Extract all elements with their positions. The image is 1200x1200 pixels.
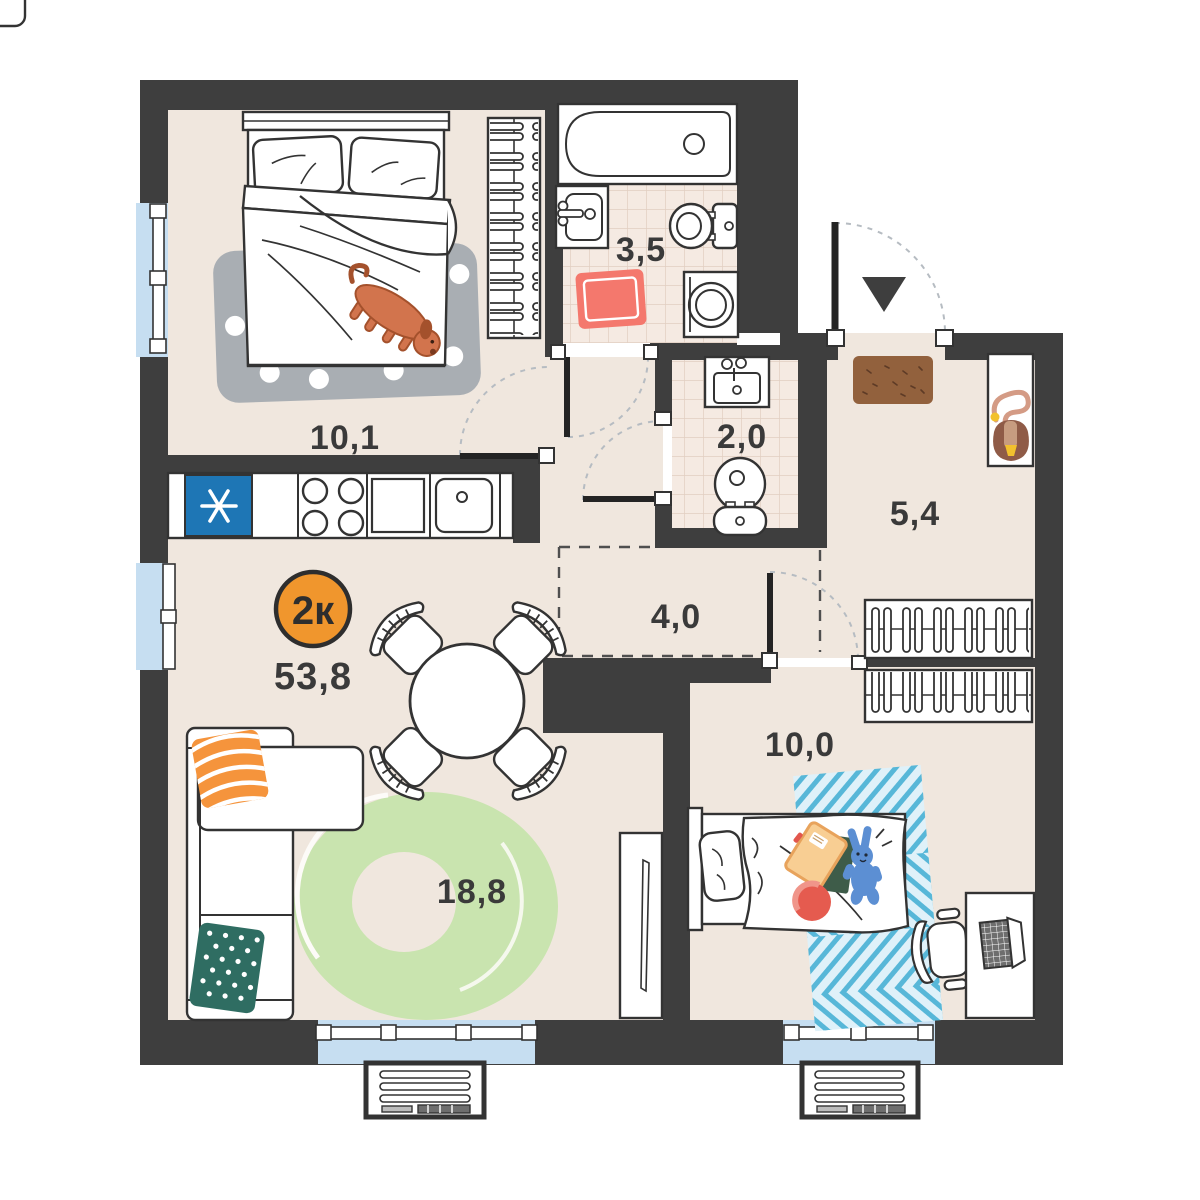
hall-wardrobe-upper (865, 600, 1032, 658)
toilet-wc (714, 458, 766, 535)
kids-pillow (699, 830, 746, 902)
hall-cabinet (988, 354, 1033, 466)
bathroom-sink (556, 186, 608, 248)
corridor-area-label: 4,0 (651, 598, 701, 636)
ac-unit-left (366, 1063, 484, 1117)
living-room-bottom-window (316, 1020, 537, 1064)
bedroom-area-label: 10,1 (310, 419, 380, 457)
bathtub (558, 104, 737, 184)
ac-unit-right (802, 1063, 918, 1117)
floor-plan-canvas: 10,1 (0, 0, 1200, 1200)
floor-plan-page: 10,1 (0, 0, 1200, 1200)
bed-pillow-right (348, 137, 440, 199)
desk (966, 893, 1034, 1018)
unit-type-badge-label: 2к (292, 589, 335, 633)
wall-bathroom-right-block (737, 80, 798, 333)
bedroom-window (136, 203, 168, 357)
living-room-side-window (136, 563, 176, 670)
bathroom-rug (575, 269, 647, 330)
sofa-pillow-teal (188, 922, 265, 1014)
washing-machine (684, 272, 738, 337)
wall-kids-top-right (861, 658, 1035, 667)
total-area-label: 53,8 (274, 656, 352, 698)
parked-door-leaf (620, 833, 662, 1018)
toilet-area-label: 2,0 (717, 418, 767, 456)
bedroom-wardrobe (488, 118, 540, 338)
wall-kitchen-end (513, 455, 540, 543)
wall-kids-top-left (690, 658, 771, 683)
wall-right (1035, 333, 1063, 1065)
hallway-area-label: 5,4 (890, 495, 940, 533)
laptop (979, 917, 1025, 971)
bathroom-toilet (670, 204, 737, 248)
bathroom-area-label: 3,5 (616, 231, 666, 269)
wall-toilet-right (798, 345, 827, 548)
wall-living-kids (663, 658, 690, 1022)
dining-table (410, 644, 524, 758)
kids-bed-headboard (688, 808, 702, 930)
doormat (853, 356, 933, 404)
entrance-threshold (838, 333, 945, 360)
hall-wardrobe-lower (865, 670, 1032, 722)
living-kitchen-area-label: 18,8 (437, 873, 507, 911)
toy-ball (793, 883, 831, 921)
kids-room-area-label: 10,0 (765, 726, 835, 764)
unit-badge: 2к 53,8 (274, 572, 352, 698)
toilet-sink (705, 357, 769, 407)
kitchen-counter (168, 473, 513, 538)
ac-units (366, 1063, 918, 1117)
wall-corridor-chunk (543, 658, 663, 733)
entrance-arrow-icon (862, 277, 906, 312)
